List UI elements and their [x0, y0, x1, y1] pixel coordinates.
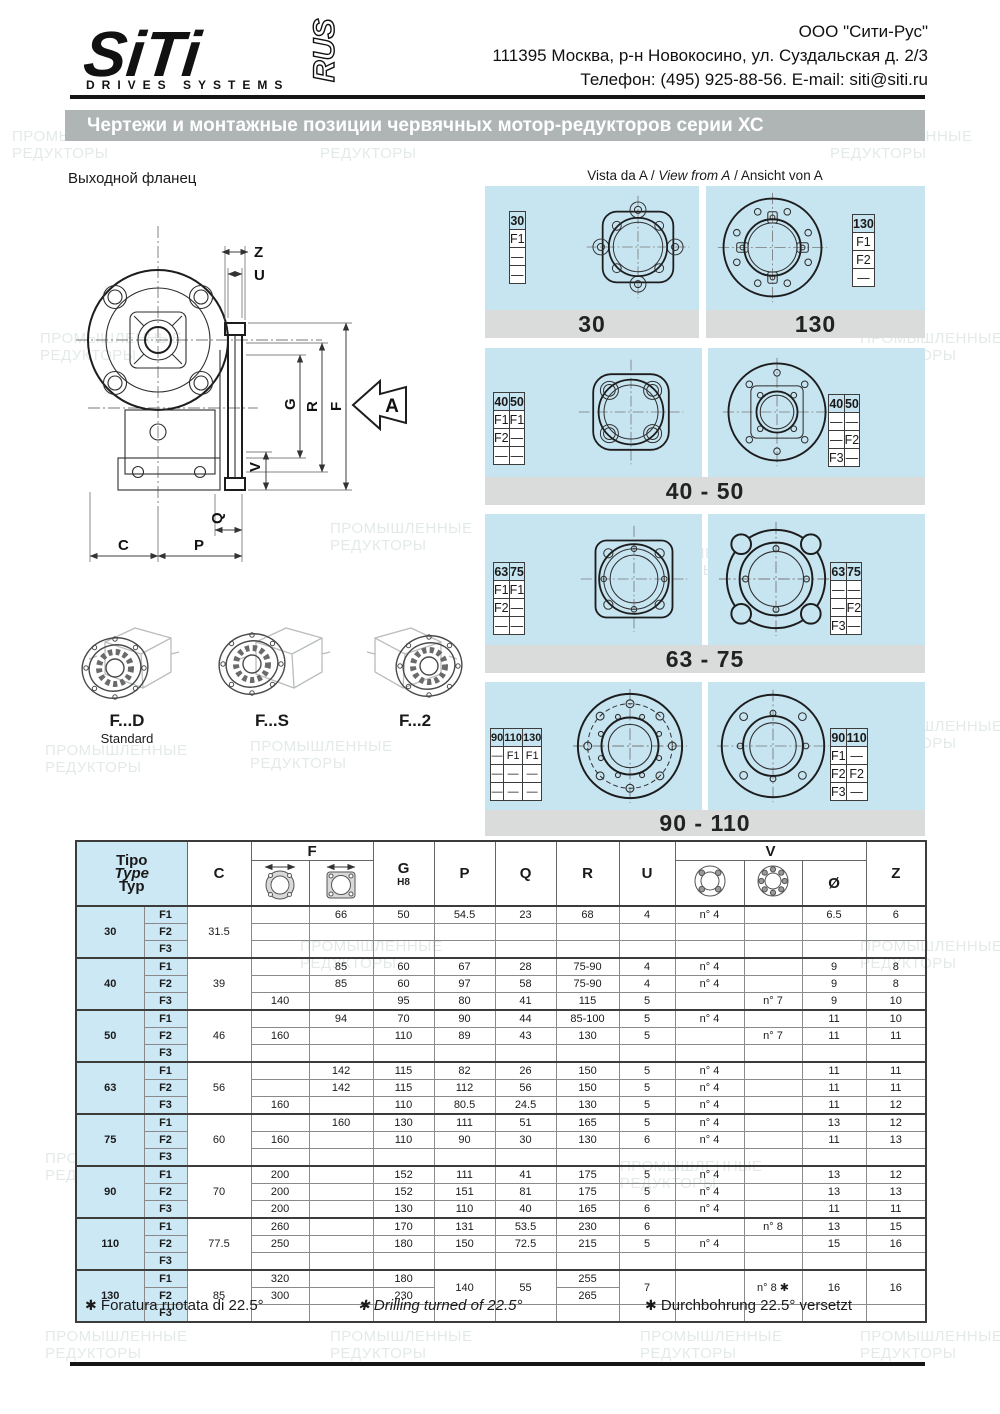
flange-drawing-40-50-left [577, 358, 685, 466]
dim-value-cell: 11 [802, 1010, 866, 1028]
panel-position-cell: F3 [831, 617, 847, 635]
dim-value-cell: 150 [556, 1080, 619, 1097]
flange-drawing-40-50-right [721, 356, 833, 468]
dim-label-f: F [328, 402, 345, 411]
col-header-q: Q [495, 841, 556, 906]
flange-panel-40-50: 4050F1F1F2——— 4050———F2F3— 40 - 50 [485, 348, 925, 505]
panel-caption: 30 [485, 310, 699, 338]
dim-value-cell [744, 1236, 802, 1253]
flange-panel-30: 30F1—— 30 [485, 186, 699, 338]
f-variant-cell: F1 [144, 1166, 187, 1184]
dim-value-cell [373, 1045, 434, 1063]
dim-value-cell [309, 1028, 373, 1045]
col-header-g: GH8 [373, 841, 434, 906]
dim-value-cell: 6 [866, 906, 926, 924]
dim-value-cell: 151 [434, 1184, 495, 1201]
dim-value-cell: 11 [802, 1201, 866, 1219]
dim-value-cell [251, 1062, 309, 1080]
dim-label-z: Z [254, 244, 263, 261]
dim-value-cell [744, 1097, 802, 1115]
dim-value-cell: 72.5 [495, 1236, 556, 1253]
dim-value-cell: 175 [556, 1166, 619, 1184]
f-variant-cell: F1 [144, 906, 187, 924]
dim-value-cell [675, 1149, 744, 1167]
dim-value-cell [309, 1253, 373, 1271]
panel-size-header: 30 [510, 212, 526, 230]
dim-value-cell: 15 [802, 1236, 866, 1253]
f-variant-cell: F3 [144, 1201, 187, 1219]
watermark: ПРОМЫШЛЕННЫЕ РЕДУКТОРЫ [640, 1328, 782, 1362]
panel-position-cell: — [509, 617, 525, 635]
company-phone-email: Телефон: (495) 925-88-56. E-mail: siti@s… [492, 68, 928, 92]
dim-label-p: P [194, 537, 204, 554]
panel-position-cell: — [510, 266, 526, 284]
tipo-header: Tipo Type Typ [76, 841, 187, 906]
dim-value-cell: 11 [802, 1062, 866, 1080]
dim-value-cell [556, 941, 619, 959]
dim-value-cell [309, 924, 373, 941]
dim-value-cell: 13 [802, 1184, 866, 1201]
dim-value-cell: 11 [866, 1201, 926, 1219]
flange-drawing-63-75-left [579, 524, 689, 634]
dim-value-cell: 75-90 [556, 958, 619, 976]
panel-position-cell: F1 [853, 233, 875, 251]
footnote-en: ✱ Drilling turned of 22.5° [358, 1297, 523, 1314]
f-variant-cell: F1 [144, 1010, 187, 1028]
f-variant-cell: F3 [144, 1097, 187, 1115]
dim-value-cell: 68 [556, 906, 619, 924]
vista-title-de: / Ansicht von A [734, 168, 823, 183]
c-value-cell: 56 [187, 1062, 251, 1114]
dim-value-cell: n° 4 [675, 1097, 744, 1115]
dim-value-cell: 130 [373, 1201, 434, 1219]
panel-size-header: 110 [846, 729, 867, 747]
dim-value-cell: 5 [619, 1080, 675, 1097]
size-cell: 130 [76, 1270, 144, 1322]
dim-value-cell: 9 [802, 993, 866, 1011]
dim-value-cell: 6 [619, 1201, 675, 1219]
dim-value-cell: 4 [619, 976, 675, 993]
dim-value-cell: 13 [866, 1132, 926, 1149]
dim-value-cell: n° 7 [744, 1028, 802, 1045]
catalog-page: ПРОМЫШЛЕННЫЕ РЕДУКТОРЫПРОМЫШЛЕННЫЕ РЕДУК… [0, 0, 1000, 1414]
panel-size-header: 63 [494, 563, 510, 581]
dim-value-cell: 41 [495, 1166, 556, 1184]
flange-drawing-90-110-left [571, 687, 689, 805]
dim-value-cell: 5 [619, 1166, 675, 1184]
dim-value-cell: 56 [495, 1080, 556, 1097]
f-variant-cell: F2 [144, 1028, 187, 1045]
dim-value-cell: 6.5 [802, 906, 866, 924]
vista-title-it: Vista da A / [587, 168, 654, 183]
dim-value-cell [434, 941, 495, 959]
watermark: ПРОМЫШЛЕННЫЕ РЕДУКТОРЫ [860, 1328, 1000, 1362]
col-header-diameter: Ø [802, 861, 866, 907]
dim-value-cell: n° 4 [675, 1236, 744, 1253]
dim-value-cell: 11 [866, 1028, 926, 1045]
dim-value-cell: 130 [373, 1114, 434, 1132]
variant-note: Standard [62, 731, 192, 746]
dim-value-cell: 200 [251, 1184, 309, 1201]
dim-value-cell: 230 [556, 1218, 619, 1236]
dim-value-cell [744, 976, 802, 993]
dim-value-cell [251, 1010, 309, 1028]
f-variant-cell: F1 [144, 1270, 187, 1288]
dim-value-cell [495, 941, 556, 959]
dim-value-cell: 13 [866, 1184, 926, 1201]
panel-position-cell: F1 [523, 747, 542, 765]
f-variant-cell: F2 [144, 1236, 187, 1253]
v-8-hole-flange-icon [744, 861, 802, 907]
panel-position-cell: — [509, 429, 525, 447]
c-value-cell: 77.5 [187, 1218, 251, 1270]
dim-value-cell [744, 1166, 802, 1184]
f-variant-cell: F2 [144, 1080, 187, 1097]
tipo-label-de: Typ [77, 880, 187, 893]
dim-value-cell: 265 [556, 1288, 619, 1305]
dim-value-cell: 58 [495, 976, 556, 993]
view-arrow-label: A [385, 396, 399, 417]
col-header-u: U [619, 841, 675, 906]
f-variant-cell: F2 [144, 924, 187, 941]
dim-value-cell [675, 924, 744, 941]
dim-value-cell [309, 1270, 373, 1288]
dim-value-cell [251, 906, 309, 924]
dim-value-cell: 250 [251, 1236, 309, 1253]
panel-position-cell: — [523, 765, 542, 783]
dim-value-cell: 11 [802, 1097, 866, 1115]
f-variant-cell: F1 [144, 1218, 187, 1236]
dim-value-cell [556, 1045, 619, 1063]
panel-position-cell: F2 [846, 765, 867, 783]
header-divider [70, 95, 925, 99]
panel-position-cell: — [491, 783, 504, 801]
panel-position-table: 130F1F2— [852, 214, 875, 287]
panel-position-table: 30F1—— [509, 211, 526, 284]
panel-size-header: 130 [523, 729, 542, 747]
dim-value-cell [495, 924, 556, 941]
f-variant-cell: F3 [144, 1149, 187, 1167]
dim-value-cell [866, 941, 926, 959]
dim-value-cell: n° 4 [675, 906, 744, 924]
panel-position-cell: — [491, 765, 504, 783]
dim-value-cell: 81 [495, 1184, 556, 1201]
dim-value-cell [744, 1149, 802, 1167]
col-header-z: Z [866, 841, 926, 906]
panel-position-cell: F2 [494, 599, 510, 617]
dim-value-cell: 110 [373, 1097, 434, 1115]
col-header-f: F [251, 841, 373, 861]
col-header-r: R [556, 841, 619, 906]
c-value-cell: 85 [187, 1270, 251, 1322]
panel-position-cell: — [829, 413, 845, 431]
dim-value-cell: 8 [866, 958, 926, 976]
dim-value-cell: 130 [556, 1132, 619, 1149]
dim-value-cell [309, 1201, 373, 1219]
panel-size-header: 75 [509, 563, 525, 581]
dim-value-cell: 75-90 [556, 976, 619, 993]
dim-value-cell [675, 941, 744, 959]
company-name: ООО "Сити-Рус" [492, 20, 928, 44]
dim-value-cell [309, 941, 373, 959]
panel-size-header: 40 [829, 395, 845, 413]
dim-value-cell: 11 [802, 1028, 866, 1045]
dim-value-cell [619, 1253, 675, 1271]
dim-value-cell: 28 [495, 958, 556, 976]
dim-value-cell: n° 4 [675, 1184, 744, 1201]
panel-size-header: 90 [831, 729, 847, 747]
dim-value-cell: 165 [556, 1201, 619, 1219]
variant-code: F...2 [350, 711, 480, 731]
flange-drawing-30 [585, 194, 691, 300]
c-value-cell: 46 [187, 1010, 251, 1062]
panel-position-cell: F1 [510, 230, 526, 248]
dim-value-cell: 11 [802, 1132, 866, 1149]
dim-value-cell: 80 [434, 993, 495, 1011]
dim-value-cell: 44 [495, 1010, 556, 1028]
dim-value-cell: 111 [434, 1166, 495, 1184]
panel-position-cell: — [510, 248, 526, 266]
dim-value-cell [744, 1132, 802, 1149]
panel-position-cell: — [509, 447, 525, 465]
panel-position-cell: — [846, 617, 862, 635]
dim-value-cell: 60 [373, 976, 434, 993]
dim-value-cell [556, 924, 619, 941]
panel-caption: 90 - 110 [485, 810, 925, 836]
dim-value-cell [251, 1253, 309, 1271]
dim-value-cell: 152 [373, 1166, 434, 1184]
f-variant-cell: F3 [144, 1253, 187, 1271]
dim-value-cell: 80.5 [434, 1097, 495, 1115]
dim-value-cell: 41 [495, 993, 556, 1011]
dim-value-cell [744, 1010, 802, 1028]
dim-value-cell [251, 1045, 309, 1063]
v-4-hole-flange-icon [675, 861, 744, 907]
dim-value-cell: 5 [619, 1028, 675, 1045]
dim-value-cell [556, 1305, 619, 1323]
dim-value-cell [744, 1184, 802, 1201]
panel-position-table: 6375———F2F3— [830, 562, 862, 635]
dim-value-cell [619, 924, 675, 941]
dim-value-cell: 115 [373, 1062, 434, 1080]
dim-value-cell: 112 [434, 1080, 495, 1097]
dim-label-g: G [282, 398, 299, 410]
panel-caption: 130 [706, 310, 925, 338]
dim-value-cell: 140 [251, 993, 309, 1011]
dim-value-cell: 13 [802, 1114, 866, 1132]
flange-drawing-63-75-right [717, 520, 835, 638]
dim-value-cell [744, 1253, 802, 1271]
dim-value-cell [251, 1149, 309, 1167]
dim-value-cell: 160 [251, 1097, 309, 1115]
panel-position-table: 90110130—F1F1—————— [490, 728, 542, 801]
dim-value-cell [866, 1305, 926, 1323]
dim-value-cell [309, 1132, 373, 1149]
dim-value-cell [866, 924, 926, 941]
dim-value-cell: 40 [495, 1201, 556, 1219]
panel-position-table: 4050F1F1F2——— [493, 392, 525, 465]
dim-value-cell: 150 [434, 1236, 495, 1253]
dim-value-cell [434, 1253, 495, 1271]
size-cell: 90 [76, 1166, 144, 1218]
output-flange-label: Выходной фланец [68, 170, 196, 187]
variant-f2: F...2 [350, 612, 480, 731]
f-variant-cell: F2 [144, 1132, 187, 1149]
panel-position-cell: — [844, 449, 860, 467]
dim-value-cell [556, 1149, 619, 1167]
dim-value-cell: 24.5 [495, 1097, 556, 1115]
dim-value-cell [309, 1149, 373, 1167]
dim-value-cell: 13 [802, 1218, 866, 1236]
dim-value-cell: n° 4 [675, 1201, 744, 1219]
f-square-flange-icon [309, 861, 373, 907]
variant-code: F...D [62, 711, 192, 731]
variant-fs: F...S [207, 612, 337, 731]
dim-value-cell: 50 [373, 906, 434, 924]
dim-value-cell: 215 [556, 1236, 619, 1253]
c-value-cell: 60 [187, 1114, 251, 1166]
variant-f2-figure-icon [355, 612, 475, 704]
dim-value-cell: 82 [434, 1062, 495, 1080]
dim-value-cell [251, 941, 309, 959]
dim-value-cell [309, 993, 373, 1011]
dim-value-cell: 11 [866, 1080, 926, 1097]
dim-value-cell [373, 924, 434, 941]
dim-value-cell: n° 7 [744, 993, 802, 1011]
dim-value-cell: 94 [309, 1010, 373, 1028]
dim-value-cell: 5 [619, 1236, 675, 1253]
panel-position-cell: — [509, 599, 525, 617]
dim-value-cell: 160 [309, 1114, 373, 1132]
dim-value-cell: 150 [556, 1062, 619, 1080]
dim-value-cell: n° 4 [675, 1010, 744, 1028]
dim-value-cell: n° 4 [675, 1166, 744, 1184]
panel-position-cell: — [846, 783, 867, 801]
dim-value-cell [556, 1253, 619, 1271]
dim-value-cell [744, 906, 802, 924]
panel-position-cell: — [491, 747, 504, 765]
panel-position-cell: F2 [846, 599, 862, 617]
dim-value-cell [802, 1253, 866, 1271]
dim-value-cell: n° 4 [675, 1132, 744, 1149]
panel-size-header: 110 [504, 729, 523, 747]
flange-panel-90-110: 90110130—F1F1—————— 90110F1—F2F2F3— 90 -… [485, 682, 925, 836]
dim-value-cell: 11 [866, 1062, 926, 1080]
size-cell: 110 [76, 1218, 144, 1270]
dim-value-cell: 9 [802, 958, 866, 976]
dim-value-cell: 111 [434, 1114, 495, 1132]
panel-size-header: 75 [846, 563, 862, 581]
dim-value-cell: 11 [802, 1080, 866, 1097]
dim-value-cell: 4 [619, 906, 675, 924]
variant-fd-figure-icon [67, 612, 187, 704]
panel-position-cell: — [844, 413, 860, 431]
company-contact-block: ООО "Сити-Рус" 111395 Москва, р-н Новоко… [492, 20, 928, 92]
dim-value-cell [495, 1149, 556, 1167]
dim-value-cell [251, 1080, 309, 1097]
panel-size-header: 40 [494, 393, 510, 411]
panel-size-header: 130 [853, 215, 875, 233]
dim-value-cell: 70 [373, 1010, 434, 1028]
dim-value-cell: 142 [309, 1062, 373, 1080]
dim-value-cell: 160 [251, 1028, 309, 1045]
panel-position-cell: F1 [494, 581, 510, 599]
f-variant-cell: F1 [144, 1114, 187, 1132]
company-address: 111395 Москва, р-н Новокосино, ул. Сузда… [492, 44, 928, 68]
output-flange-drawing: Z U G R F V Q C P A [70, 200, 470, 592]
panel-position-cell: — [853, 269, 875, 287]
watermark: ПРОМЫШЛЕННЫЕ РЕДУКТОРЫ [330, 1328, 472, 1362]
f-variant-cell: F3 [144, 1045, 187, 1063]
dim-value-cell: 8 [866, 976, 926, 993]
dim-value-cell: n° 4 [675, 1062, 744, 1080]
panel-position-table: 90110F1—F2F2F3— [830, 728, 868, 801]
dim-value-cell [309, 1045, 373, 1063]
dim-value-cell [675, 993, 744, 1011]
panel-position-cell: — [846, 581, 862, 599]
dim-value-cell: 180 [373, 1270, 434, 1288]
dim-value-cell: 142 [309, 1080, 373, 1097]
dim-value-cell: n° 4 [675, 1114, 744, 1132]
dim-value-cell [675, 1045, 744, 1063]
dim-value-cell [744, 1114, 802, 1132]
dim-value-cell [309, 1184, 373, 1201]
footnote-it: ✱ Foratura ruotata di 22.5° [85, 1297, 264, 1314]
dim-value-cell: 170 [373, 1218, 434, 1236]
dim-value-cell: 12 [866, 1166, 926, 1184]
dim-value-cell: 89 [434, 1028, 495, 1045]
panel-caption: 40 - 50 [485, 477, 925, 505]
dim-value-cell [619, 1045, 675, 1063]
c-value-cell: 31.5 [187, 906, 251, 958]
dim-value-cell [251, 924, 309, 941]
dim-value-cell: 5 [619, 1114, 675, 1132]
dim-value-cell: 30 [495, 1132, 556, 1149]
dim-value-cell: 4 [619, 958, 675, 976]
mounting-variants: F...D Standard F...S F...2 [62, 612, 482, 782]
f-round-flange-icon [251, 861, 309, 907]
flange-panel-63-75: 6375F1F1F2——— 6375———F2F3— 63 - 75 [485, 514, 925, 673]
dim-value-cell [434, 924, 495, 941]
dim-value-cell: 5 [619, 1097, 675, 1115]
dim-value-cell: n° 4 [675, 958, 744, 976]
dim-value-cell [251, 976, 309, 993]
footnote-de: ✱ Durchbohrung 22.5° versetzt [645, 1297, 852, 1314]
dim-value-cell: 130 [556, 1028, 619, 1045]
dim-value-cell [744, 1045, 802, 1063]
variant-fd: F...D Standard [62, 612, 192, 746]
dim-value-cell: 12 [866, 1097, 926, 1115]
f-variant-cell: F1 [144, 958, 187, 976]
panel-position-cell: F1 [494, 411, 510, 429]
flange-panel-130: 130F1F2— 130 [706, 186, 925, 338]
c-value-cell: 39 [187, 958, 251, 1010]
dim-value-cell [373, 1253, 434, 1271]
panel-position-cell: — [829, 431, 845, 449]
dim-value-cell [434, 1149, 495, 1167]
dim-value-cell: 13 [802, 1166, 866, 1184]
dim-value-cell [802, 941, 866, 959]
panel-position-table: 6375F1F1F2——— [493, 562, 525, 635]
dim-value-cell: 320 [251, 1270, 309, 1288]
dim-value-cell [495, 1253, 556, 1271]
panel-position-cell: — [494, 617, 510, 635]
dim-value-cell: 16 [866, 1236, 926, 1253]
dim-value-cell: 85-100 [556, 1010, 619, 1028]
dim-value-cell [675, 1218, 744, 1236]
size-cell: 30 [76, 906, 144, 958]
dim-value-cell [309, 1236, 373, 1253]
